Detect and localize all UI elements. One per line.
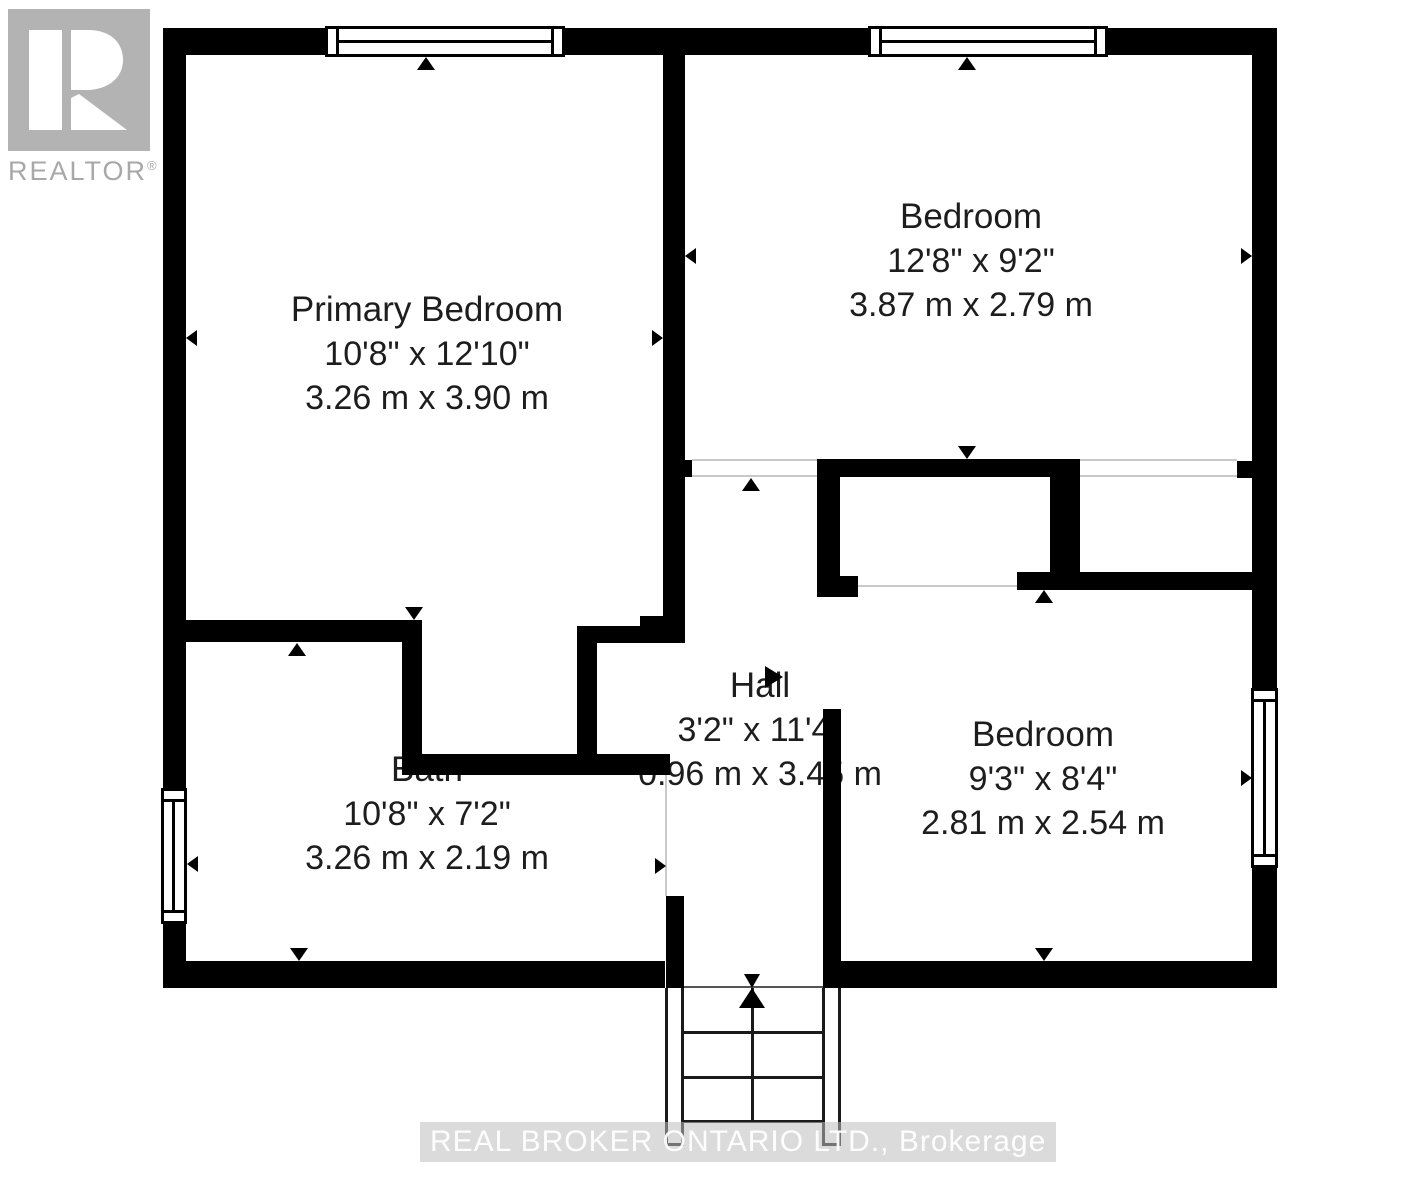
wall bbox=[841, 961, 1277, 988]
opening-line bbox=[665, 775, 667, 896]
brokerage-watermark: REAL BROKER ONTARIO LTD., Brokerage bbox=[420, 1122, 1056, 1162]
realtor-text: REALTOR bbox=[8, 156, 147, 186]
wall bbox=[663, 55, 685, 643]
arrow-up-icon bbox=[1035, 590, 1053, 603]
room-dims-metric: 3.26 m x 3.90 m bbox=[177, 376, 677, 420]
window-mullion bbox=[881, 40, 1095, 43]
wall bbox=[1237, 461, 1252, 478]
room-dims-metric: 2.81 m x 2.54 m bbox=[793, 801, 1293, 845]
arrow-up-icon bbox=[958, 57, 976, 70]
arrow-up-icon bbox=[417, 57, 435, 70]
wall bbox=[817, 459, 1080, 477]
opening-line bbox=[692, 459, 817, 461]
door-arrow-icon bbox=[765, 666, 783, 688]
realtor-logo-icon bbox=[8, 9, 150, 151]
window-mullion bbox=[1263, 701, 1266, 855]
window-mullion bbox=[338, 40, 552, 43]
window bbox=[325, 26, 565, 57]
registered-mark: ® bbox=[147, 158, 159, 173]
room-dims-imperial: 9'3" x 8'4" bbox=[793, 757, 1293, 801]
wall bbox=[840, 576, 858, 597]
window bbox=[868, 26, 1108, 57]
arrow-left-icon bbox=[685, 248, 696, 264]
realtor-logo-label: REALTOR® bbox=[8, 156, 160, 187]
arrow-left-icon bbox=[186, 330, 197, 346]
wall bbox=[1017, 572, 1253, 590]
opening-line bbox=[1080, 475, 1237, 477]
arrow-right-icon bbox=[652, 330, 663, 346]
arrow-right-icon bbox=[1241, 770, 1252, 786]
opening-line bbox=[692, 475, 817, 477]
arrow-down-icon bbox=[958, 446, 976, 459]
wall bbox=[402, 754, 670, 775]
room-name: Bedroom bbox=[793, 713, 1293, 757]
window-mullion bbox=[172, 801, 175, 911]
room-dims-imperial: 12'8" x 9'2" bbox=[721, 239, 1221, 283]
opening-line bbox=[858, 585, 1017, 587]
arrow-down-icon bbox=[405, 607, 423, 620]
wall bbox=[402, 620, 422, 775]
opening-line bbox=[1080, 459, 1237, 461]
wall bbox=[685, 460, 692, 477]
room-label-bedroom-bottom: Bedroom 9'3" x 8'4" 2.81 m x 2.54 m bbox=[793, 713, 1293, 845]
room-dims-imperial: 10'8" x 7'2" bbox=[177, 792, 677, 836]
room-name: Primary Bedroom bbox=[177, 288, 677, 332]
wall bbox=[163, 961, 665, 988]
stairs-up-arrow-icon bbox=[737, 970, 767, 1010]
floor-plan: REALTOR® bbox=[0, 0, 1424, 1200]
arrow-up-icon bbox=[742, 478, 760, 491]
window bbox=[161, 788, 187, 924]
window bbox=[1251, 688, 1278, 868]
wall bbox=[1050, 459, 1080, 590]
arrow-up-icon bbox=[288, 643, 306, 656]
room-label-primary-bedroom: Primary Bedroom 10'8" x 12'10" 3.26 m x … bbox=[177, 288, 677, 420]
room-name: Bedroom bbox=[721, 195, 1221, 239]
arrow-right-icon bbox=[1241, 248, 1252, 264]
arrow-down-icon bbox=[290, 948, 308, 961]
wall bbox=[577, 626, 597, 775]
wall bbox=[577, 626, 663, 643]
arrow-down-icon bbox=[1035, 948, 1053, 961]
room-dims-metric: 3.87 m x 2.79 m bbox=[721, 283, 1221, 327]
room-dims-metric: 3.26 m x 2.19 m bbox=[177, 836, 677, 880]
wall bbox=[817, 459, 840, 597]
room-label-bedroom-top: Bedroom 12'8" x 9'2" 3.87 m x 2.79 m bbox=[721, 195, 1221, 327]
wall bbox=[666, 896, 684, 988]
wall bbox=[823, 709, 841, 988]
wall bbox=[186, 620, 420, 642]
room-dims-imperial: 10'8" x 12'10" bbox=[177, 332, 677, 376]
arrow-left-icon bbox=[187, 856, 198, 872]
arrow-right-icon bbox=[655, 858, 666, 874]
